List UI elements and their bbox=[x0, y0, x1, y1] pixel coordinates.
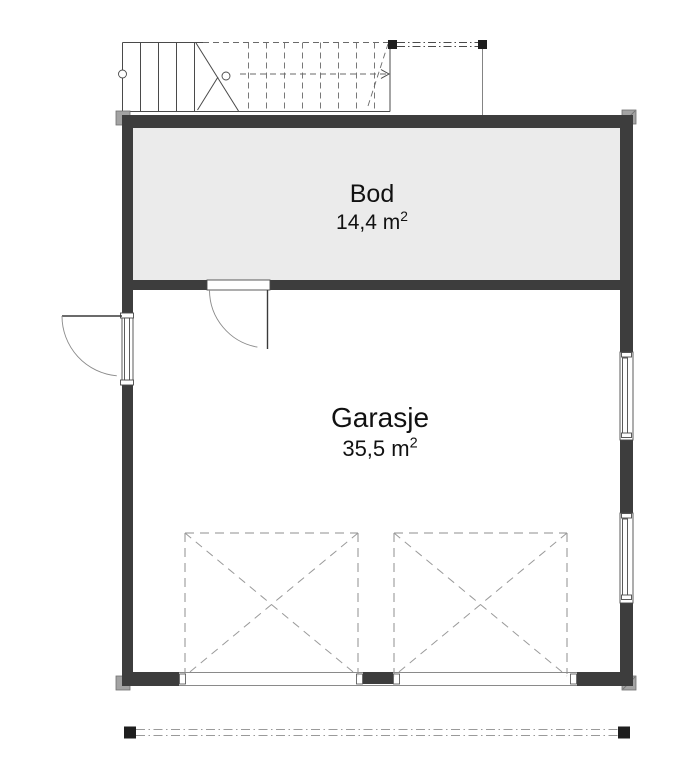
garage-thresholds bbox=[179, 672, 577, 686]
overhang-line-icon bbox=[124, 727, 630, 739]
room-name-garasje: Garasje bbox=[280, 403, 480, 434]
exterior-door-icon bbox=[62, 313, 134, 385]
interior-door-icon bbox=[207, 280, 270, 349]
window-icon-lower bbox=[620, 513, 633, 603]
room-area-garasje: 35,5 m2 bbox=[280, 436, 480, 461]
garage-door-icon-left bbox=[185, 533, 358, 676]
room-name-bod: Bod bbox=[272, 181, 472, 209]
floor-plan: Bod 14,4 m2 Garasje 35,5 m2 bbox=[0, 0, 696, 767]
garage-door-icon-right bbox=[394, 533, 567, 676]
floor-plan-drawing bbox=[0, 0, 696, 767]
room-label-garasje: Garasje 35,5 m2 bbox=[280, 403, 480, 461]
window-icon-upper bbox=[620, 352, 633, 440]
staircase-icon bbox=[119, 43, 391, 112]
room-label-bod: Bod 14,4 m2 bbox=[272, 181, 472, 235]
porch-posts-icon bbox=[388, 40, 487, 115]
room-area-bod: 14,4 m2 bbox=[272, 211, 472, 235]
